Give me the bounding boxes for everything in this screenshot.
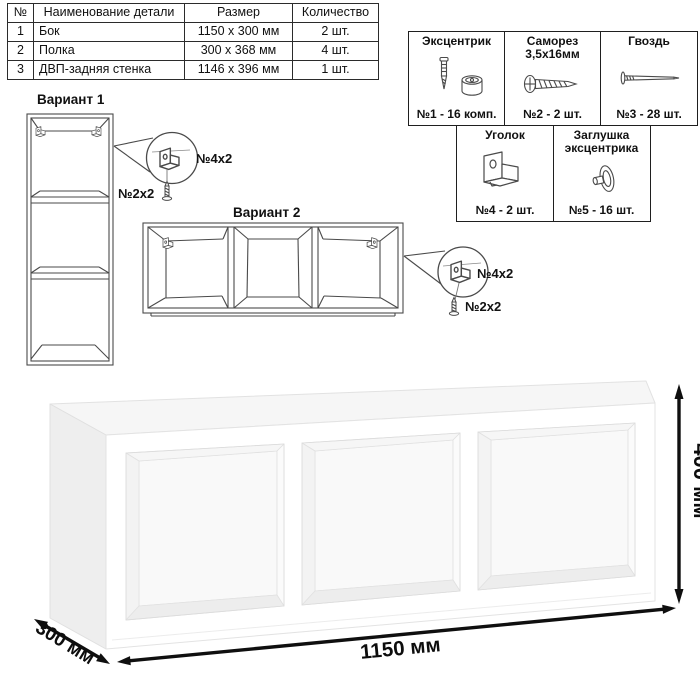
screw-icon xyxy=(518,67,588,101)
shelf-compartment xyxy=(126,444,284,620)
part-num: 1 xyxy=(8,23,34,42)
shelf-left-face xyxy=(50,404,106,649)
shelf-compartment xyxy=(302,433,460,605)
parts-table: № Наименование детали Размер Количество … xyxy=(7,3,379,80)
assembled-shelf-render xyxy=(50,381,655,649)
part-name: Полка xyxy=(34,42,185,61)
hardware-qty: №1 - 16 комп. xyxy=(417,107,497,121)
table-row: 2 Полка 300 x 368 мм 4 шт. xyxy=(8,42,379,61)
hardware-name: Эксцентрик xyxy=(422,35,491,48)
bracket-qty-label: №4х2 xyxy=(477,266,513,281)
bracket-mark-icon xyxy=(367,238,377,249)
cam-bolt-icon xyxy=(422,56,492,100)
part-name: Бок xyxy=(34,23,185,42)
part-qty: 2 шт. xyxy=(293,23,379,42)
hardware-qty: №4 - 2 шт. xyxy=(476,203,535,217)
screw-qty-label: №2х2 xyxy=(465,299,501,314)
variant1-title: Вариант 1 xyxy=(37,92,105,107)
corner-bracket-icon xyxy=(470,150,540,194)
col-header-name: Наименование детали xyxy=(34,4,185,23)
hardware-qty: №5 - 16 шт. xyxy=(569,203,635,217)
hardware-cell-bracket: Уголок №4 - 2 шт. xyxy=(456,125,554,222)
part-qty: 1 шт. xyxy=(293,61,379,80)
hardware-cell-cam: Эксцентрик №1 - 16 комп. xyxy=(408,31,505,126)
hardware-box: Эксцентрик №1 - 16 комп. Саморез 3,5х xyxy=(408,31,698,222)
screw-qty-label: №2х2 xyxy=(118,186,154,201)
variant2-callout: №4х2 №2х2 xyxy=(404,247,513,315)
screw-icon xyxy=(162,182,171,201)
col-header-num: № xyxy=(8,4,34,23)
shelf-compartment xyxy=(478,423,635,590)
part-qty: 4 шт. xyxy=(293,42,379,61)
part-num: 2 xyxy=(8,42,34,61)
bracket-mark-icon xyxy=(36,127,45,137)
table-row: 1 Бок 1150 x 300 мм 2 шт. xyxy=(8,23,379,42)
col-header-size: Размер xyxy=(185,4,293,23)
variant1-shelf-drawing xyxy=(27,114,113,365)
nail-icon xyxy=(614,61,684,95)
bracket-mark-icon xyxy=(92,127,101,137)
hardware-qty: №3 - 28 шт. xyxy=(616,107,682,121)
parts-table-header: № Наименование детали Размер Количество xyxy=(8,4,379,23)
hardware-cell-cap: Заглушка эксцентрика №5 - 16 шт. xyxy=(553,125,651,222)
hardware-cell-screw: Саморез 3,5х16мм №2 - 2 шт. xyxy=(504,31,602,126)
part-name: ДВП-задняя стенка xyxy=(34,61,185,80)
dimension-height: 400 мм xyxy=(675,384,700,604)
table-row: 3 ДВП-задняя стенка 1146 x 396 мм 1 шт. xyxy=(8,61,379,80)
part-size: 300 x 368 мм xyxy=(185,42,293,61)
assembly-instruction-sheet: №4х2 №2х2 xyxy=(0,0,700,690)
hardware-name: Саморез 3,5х16мм xyxy=(506,35,600,62)
part-size: 1150 x 300 мм xyxy=(185,23,293,42)
hardware-name: Заглушка эксцентрика xyxy=(555,129,649,156)
hardware-name: Уголок xyxy=(485,129,525,142)
bracket-qty-label: №4х2 xyxy=(196,151,232,166)
dimension-height-label: 400 мм xyxy=(689,443,700,518)
part-num: 3 xyxy=(8,61,34,80)
hardware-name: Гвоздь xyxy=(628,35,670,48)
variant2-title: Вариант 2 xyxy=(233,205,300,220)
variant2-shelf-drawing xyxy=(143,223,403,316)
screw-icon xyxy=(449,298,458,316)
hardware-qty: №2 - 2 шт. xyxy=(523,107,582,121)
bracket-mark-icon xyxy=(163,238,173,249)
variant1-callout: №4х2 №2х2 xyxy=(114,133,232,202)
cam-cap-icon xyxy=(567,159,637,199)
col-header-qty: Количество xyxy=(293,4,379,23)
part-size: 1146 x 396 мм xyxy=(185,61,293,80)
hardware-cell-nail: Гвоздь №3 - 28 шт. xyxy=(600,31,698,126)
